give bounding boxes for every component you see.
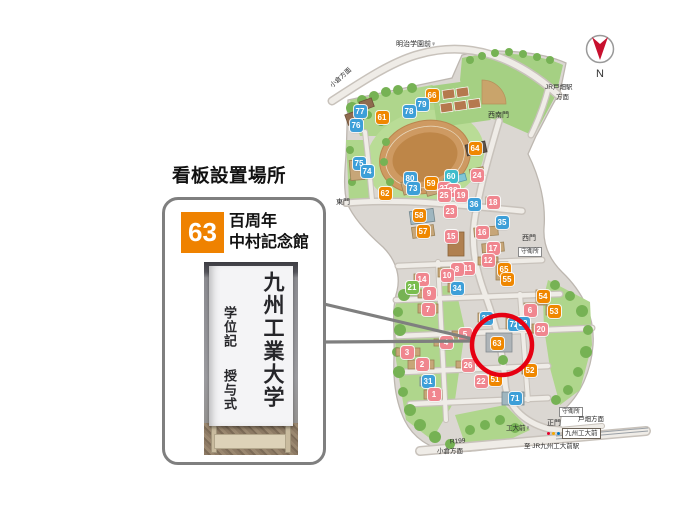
campus-map-illustration: N [0,0,680,510]
location-badge: 63 [181,212,224,253]
compass: N [587,36,614,81]
sign-photo: 九州工業大学 学位記 授与式 [204,262,298,455]
callout-box: 63 百周年 中村記念館 九州工業大学 学位記 授与式 [162,197,326,465]
banner-sub-text-1: 学位記 [220,306,239,348]
building-name-line2: 中村記念館 [229,232,309,253]
building-name: 百周年 中村記念館 [229,211,309,253]
figure-title: 看板設置場所 [172,162,286,188]
compass-north-label: N [596,68,604,80]
building-name-line1: 百周年 [229,211,309,232]
banner: 九州工業大学 学位記 授与式 [209,266,293,426]
banner-main-text: 九州工業大学 [257,271,287,409]
figure: N 66797877617664757480596024736227282519… [0,0,680,510]
banner-sub-text-2: 授与式 [220,369,239,411]
sign-stand-board [214,434,286,449]
